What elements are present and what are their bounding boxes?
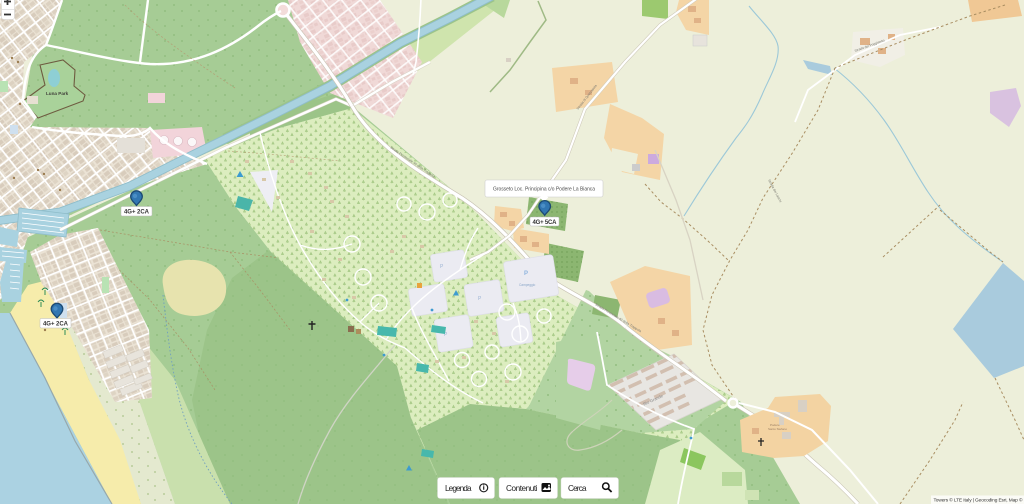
- svg-text:4G+ 2CA: 4G+ 2CA: [124, 210, 150, 216]
- svg-text:Campeggio: Campeggio: [519, 283, 536, 287]
- svg-text:Legenda: Legenda: [445, 484, 472, 493]
- svg-text:4G+ 2CA: 4G+ 2CA: [43, 322, 69, 328]
- svg-text:P: P: [524, 271, 528, 277]
- svg-text:Towers © LTE Italy | Geocoding: Towers © LTE Italy | Geocoding Esri, Map…: [934, 497, 1023, 504]
- svg-text:4G+ 5CA: 4G+ 5CA: [533, 220, 558, 226]
- svg-text:Santo Stefano: Santo Stefano: [768, 427, 787, 431]
- svg-text:Grosseto Loc. Principina c/o P: Grosseto Loc. Principina c/o Podere La B…: [493, 187, 596, 193]
- svg-text:Contenuti: Contenuti: [506, 484, 538, 493]
- svg-text:Cerca: Cerca: [568, 484, 587, 493]
- svg-text:Luna Park: Luna Park: [46, 91, 69, 96]
